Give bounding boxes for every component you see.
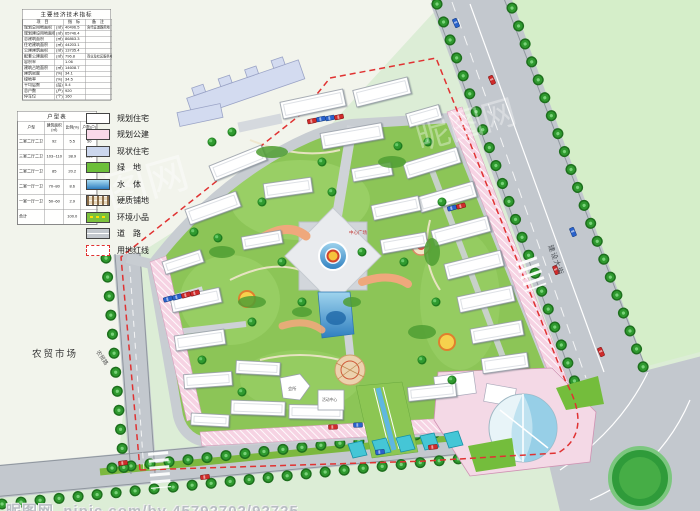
clubhouse-label: 会所 [288,385,296,392]
cell-ratio: 8.6 [64,179,81,194]
cell-unit-type: 合计 [18,209,45,224]
building [184,371,233,388]
cell-area: 92 [45,134,64,149]
cell-unit-type: 二室一厅一卫 [18,179,45,194]
cell-unit: (层) [55,83,64,89]
cell-unit-type: 一室一厅一卫 [18,194,45,209]
header-cell: 户型 [18,121,45,134]
legend: 规划住宅 规划公建 现状住宅 绿 地 水 体 硬质铺地 环境小品 [86,110,149,259]
cell-value: 160 [64,94,86,100]
cell-ratio: 38.9 [64,149,81,164]
building [231,400,285,416]
legend-item: 绿 地 [86,160,149,177]
farmers-market-label: 农贸市场 [32,346,78,360]
cell-area [45,209,64,224]
cell-ratio: 20.2 [64,164,81,179]
cell-area: 85 [45,164,64,179]
unit-type-table: 户型表 户型 建筑面积(㎡) 比例(%) 户数(户) 二室二厅二卫 92 5.5… [17,111,97,225]
legend-swatch-icon [86,113,110,124]
cell-area: 70~80 [45,179,64,194]
legend-item: 现状住宅 [86,143,149,160]
cell-unit-type: 二室二厅二卫 [18,134,45,149]
legend-swatch-icon [86,146,110,157]
legend-swatch-icon [86,228,110,239]
indicators-table: 主要经济技术指标 项 目 指 标 备 注 规划总用地面积 (㎡) 40496.5… [22,9,111,101]
cell-unit: (户) [55,88,64,94]
cell-unit: (㎡) [55,54,64,60]
legend-item: 用地红线 [86,242,149,259]
central-plaza-label: 中心广场 [349,229,367,236]
cell-label: 停车位 [23,94,55,100]
legend-item: 环境小品 [86,209,149,226]
roundabout-inner [619,457,661,499]
cell-area: 50~60 [45,194,64,209]
legend-swatch-icon [86,245,110,256]
unit-table-title: 户型表 [18,112,97,122]
indicators-title: 主要经济技术指标 [23,10,111,20]
legend-swatch-icon [86,162,110,173]
cell-ratio: 2.9 [64,194,81,209]
legend-item: 水 体 [86,176,149,193]
cell-area: 103~110 [45,149,64,164]
legend-item-label: 水 体 [117,179,141,190]
cell-unit: (㎡) [55,65,64,71]
building [191,413,230,427]
header-cell: 比例(%) [64,121,81,134]
legend-item-label: 硬质铺地 [117,195,149,206]
playground-feature-2 [439,334,455,350]
site-plan-page: 中心广场 会所 活动中心 建设大街 农贸路 昵图网 昵图网 主要经济技术指标 项… [0,0,700,511]
legend-swatch-icon [86,129,110,140]
cell-unit: (㎡) [55,37,64,43]
cell-unit: (个) [55,94,64,100]
header-cell: 建筑面积(㎡) [45,121,64,134]
legend-item: 规划公建 [86,127,149,144]
west-road [127,254,143,474]
legend-item-label: 绿 地 [117,162,141,173]
cell-unit: (㎡) [55,48,64,54]
legend-item-label: 规划住宅 [117,113,149,124]
activity-center-label: 活动中心 [322,397,337,402]
cell-label: 规划总用地面积 [23,25,55,31]
legend-item: 规划住宅 [86,110,149,127]
table-header-row: 项 目 指 标 备 注 [23,19,112,25]
cell-unit-type: 三室二厅二卫 [18,149,45,164]
cell-unit: (㎡) [55,25,64,31]
legend-item: 硬质铺地 [86,193,149,210]
legend-item-label: 环境小品 [117,212,149,223]
cell-ratio: 5.5 [64,134,81,149]
legend-item-label: 道 路 [117,228,141,239]
table-row: 停车位 (个) 160 [23,94,112,100]
legend-swatch-icon [86,195,110,206]
cell-note [86,94,112,100]
legend-item-label: 用地红线 [117,245,149,256]
legend-item: 道 路 [86,226,149,243]
legend-swatch-icon [86,179,110,190]
cell-unit: (㎡) [55,42,64,48]
legend-item-label: 规划公建 [117,129,149,140]
watermark-bottom: 昵图网_nipic.com/by 45792702/92725 [6,500,299,511]
legend-item-label: 现状住宅 [117,146,149,157]
cell-unit: (㎡) [55,31,64,37]
cell-label: 规划建设用地面积 [23,31,55,37]
cell-ratio: 100.0 [64,209,81,224]
legend-swatch-icon [86,212,110,223]
building [236,360,281,375]
cell-unit-type: 二室二厅一卫 [18,164,45,179]
